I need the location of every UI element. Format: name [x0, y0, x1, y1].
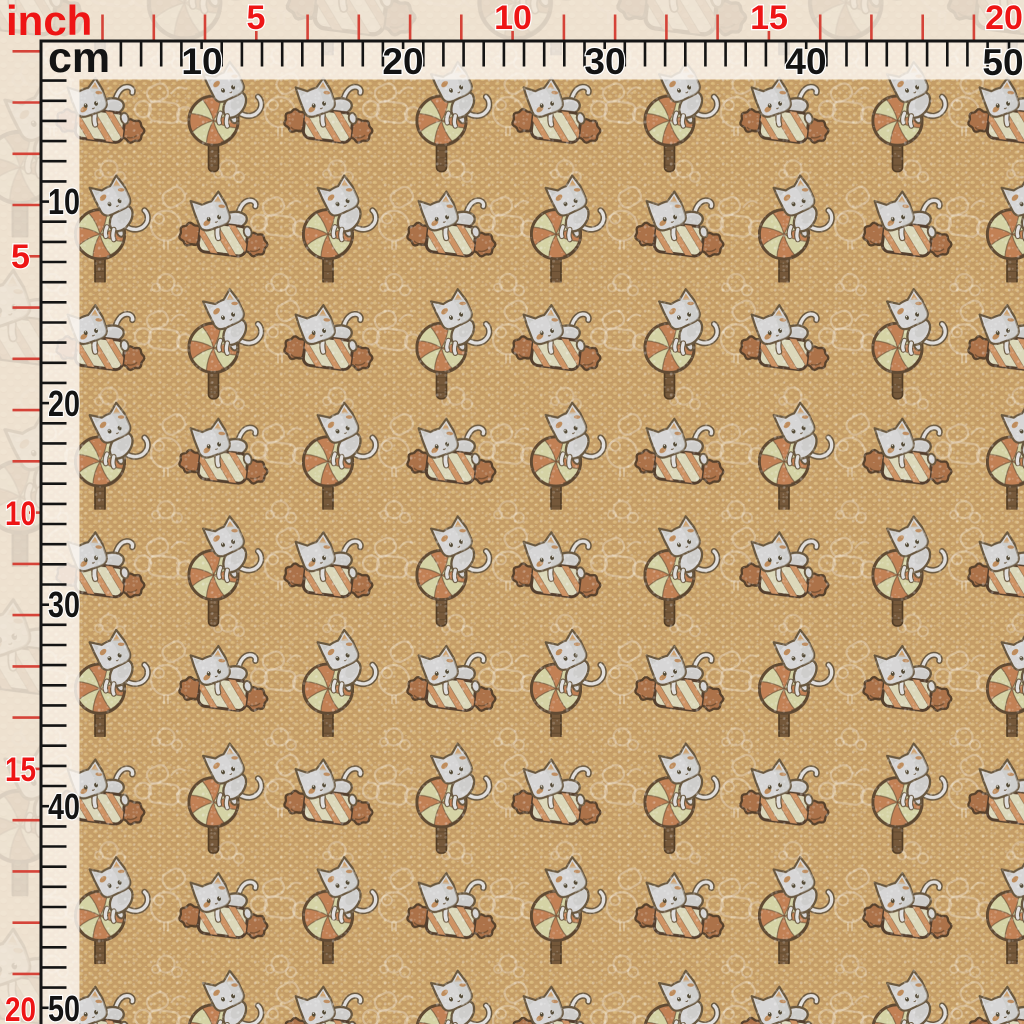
svg-text:10: 10 [48, 181, 80, 222]
svg-text:15: 15 [5, 751, 36, 789]
svg-text:20: 20 [382, 41, 423, 82]
svg-text:50: 50 [982, 42, 1023, 83]
svg-text:10: 10 [5, 495, 36, 533]
svg-text:20: 20 [985, 0, 1023, 37]
svg-text:15: 15 [750, 0, 788, 37]
svg-text:30: 30 [584, 41, 625, 82]
svg-text:cm: cm [48, 34, 110, 82]
svg-text:20: 20 [48, 383, 80, 424]
svg-text:10: 10 [494, 0, 532, 37]
svg-text:50: 50 [48, 988, 80, 1024]
svg-text:5: 5 [247, 0, 266, 37]
svg-text:40: 40 [785, 41, 826, 82]
svg-text:20: 20 [5, 991, 36, 1024]
svg-text:5: 5 [11, 238, 30, 276]
svg-text:40: 40 [48, 786, 80, 827]
svg-text:30: 30 [48, 584, 80, 625]
svg-text:10: 10 [181, 41, 222, 82]
